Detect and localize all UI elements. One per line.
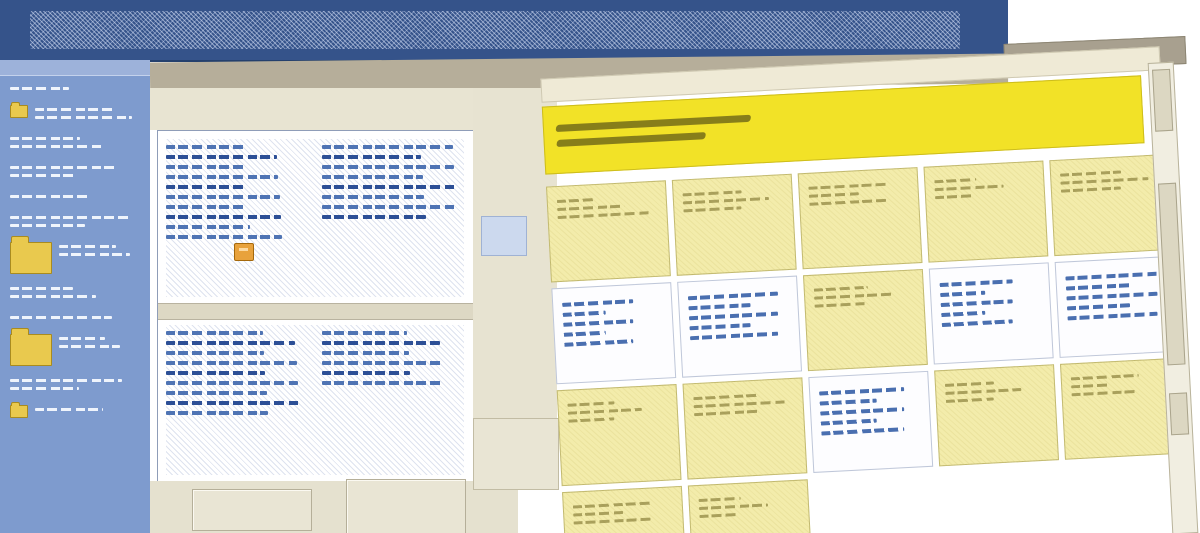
sidebar-item[interactable] (0, 97, 150, 126)
list-pane-upper-section (166, 139, 464, 297)
illegible-text-line (35, 116, 132, 119)
illegible-text-line (59, 253, 130, 256)
scrollbar-thumb[interactable] (1169, 392, 1189, 435)
illegible-text-line (322, 341, 440, 345)
illegible-text-line (322, 351, 409, 355)
sidebar-item[interactable] (0, 184, 150, 205)
sidebar-item-label-noise (10, 311, 142, 324)
status-segment (192, 489, 312, 531)
sticky-note[interactable] (929, 262, 1054, 364)
sticky-note[interactable] (923, 161, 1048, 263)
sidebar-item-label-noise (59, 332, 142, 353)
illegible-text-line (683, 197, 769, 204)
illegible-text-line (814, 286, 868, 292)
sidebar-header (0, 60, 150, 76)
sidebar-item-label-noise (10, 82, 142, 95)
illegible-text-line (1066, 283, 1130, 290)
illegible-text-line (568, 408, 642, 415)
illegible-text-line (322, 165, 454, 169)
illegible-text-line (166, 401, 299, 405)
sidebar-item-label-noise (10, 161, 142, 182)
illegible-text-line (809, 192, 859, 198)
sidebar-item-label-noise (10, 211, 142, 232)
illegible-text-line (166, 331, 263, 335)
illegible-text-line (322, 175, 423, 179)
window-title-text-noise (30, 11, 960, 49)
illegible-text-line (166, 391, 267, 395)
illegible-text-line (10, 387, 79, 390)
sidebar-item[interactable] (0, 76, 150, 97)
list-toolbar[interactable] (150, 88, 475, 130)
sidebar-item[interactable] (0, 368, 150, 397)
illegible-text-line (10, 195, 91, 198)
sticky-note[interactable] (672, 174, 797, 276)
illegible-text-line (322, 185, 455, 189)
gutter-panel (473, 418, 559, 490)
sidebar-item[interactable] (0, 305, 150, 326)
illegible-text-line (563, 311, 606, 317)
illegible-text-line (166, 361, 297, 365)
sticky-note[interactable] (803, 269, 928, 371)
illegible-text-line (690, 332, 778, 341)
illegible-text-line (35, 108, 114, 111)
illegible-text-line (688, 292, 778, 301)
illegible-text-line (941, 299, 1013, 307)
illegible-text-line (322, 215, 426, 219)
illegible-text-line (1068, 312, 1158, 321)
illegible-text-line (557, 198, 597, 203)
scrollbar-thumb[interactable] (1152, 69, 1173, 132)
sidebar-item-label-noise (10, 282, 142, 303)
illegible-text-line (809, 199, 886, 206)
folder-icon-large (10, 242, 52, 274)
illegible-text-line (10, 145, 102, 148)
illegible-text-line (820, 407, 904, 415)
illegible-text-line (940, 279, 1013, 287)
illegible-text-line (10, 166, 118, 169)
sidebar-item[interactable] (0, 326, 150, 368)
sticky-note[interactable] (808, 371, 933, 473)
sidebar-item[interactable] (0, 276, 150, 305)
illegible-text-line (821, 419, 877, 426)
illegible-text-line (166, 195, 280, 199)
illegible-text-line (10, 137, 80, 140)
sidebar-item[interactable] (0, 155, 150, 184)
text-column (166, 325, 308, 475)
illegible-text-line (10, 295, 96, 298)
folder-sidebar (0, 60, 150, 533)
illegible-text-line (166, 235, 282, 239)
sticky-note[interactable] (677, 276, 802, 378)
illegible-text-line (322, 371, 410, 375)
sticky-note[interactable] (546, 180, 671, 282)
list-pane (157, 130, 475, 484)
text-column (166, 139, 308, 297)
illegible-text-line (564, 331, 606, 337)
illegible-text-line (10, 87, 69, 90)
illegible-text-line (814, 292, 895, 299)
illegible-text-line (166, 155, 277, 159)
illegible-text-line (815, 302, 868, 308)
illegible-text-line (322, 331, 407, 335)
illegible-text-line (1067, 303, 1130, 310)
sticky-note[interactable] (557, 384, 682, 486)
illegible-text-line (166, 411, 268, 415)
illegible-text-line (59, 345, 120, 348)
illegible-text-line (166, 205, 248, 209)
illegible-text-line (567, 401, 614, 406)
illegible-text-line (821, 427, 904, 435)
illegible-text-line (819, 387, 904, 395)
illegible-text-line (10, 316, 112, 319)
illegible-text-line (946, 397, 994, 403)
illegible-text-line (945, 388, 1021, 395)
sticky-note[interactable] (688, 479, 813, 533)
sidebar-item-label-noise (10, 190, 142, 203)
sidebar-item-label-noise (59, 240, 142, 261)
illegible-text-line (166, 341, 295, 345)
sticky-note[interactable] (683, 377, 808, 479)
illegible-text-line (935, 194, 976, 199)
illegible-text-line (10, 224, 85, 227)
folder-icon (10, 405, 28, 418)
illegible-text-line (574, 518, 651, 525)
illegible-text-line (10, 287, 73, 290)
illegible-text-line (1072, 390, 1139, 397)
illegible-text-line (166, 215, 281, 219)
illegible-text-line (558, 211, 652, 219)
illegible-text-line (1061, 186, 1121, 192)
folder-icon (10, 105, 28, 118)
illegible-text-line (166, 145, 244, 149)
illegible-text-line (322, 145, 453, 149)
illegible-text-line (935, 185, 1004, 192)
illegible-text-line (1066, 292, 1157, 301)
illegible-text-line (166, 185, 247, 189)
sidebar-item[interactable] (0, 397, 150, 420)
illegible-text-line (10, 216, 129, 219)
illegible-text-line (693, 394, 759, 400)
illegible-text-line (690, 323, 751, 330)
illegible-text-line (564, 339, 633, 347)
illegible-text-line (166, 351, 264, 355)
illegible-text-line (573, 502, 651, 509)
sidebar-item[interactable] (0, 205, 150, 234)
illegible-text-line (166, 381, 298, 385)
illegible-text-line (694, 400, 787, 408)
sidebar-item[interactable] (0, 126, 150, 155)
illegible-text-line (322, 205, 457, 209)
illegible-text-line (322, 155, 421, 159)
window-title-bar[interactable] (0, 0, 1008, 62)
sidebar-item-label-noise (35, 403, 142, 416)
sticky-note[interactable] (934, 364, 1059, 466)
illegible-text-line (563, 319, 633, 327)
illegible-text-line (820, 399, 877, 406)
illegible-text-line (322, 361, 441, 365)
illegible-text-line (562, 299, 633, 307)
illegible-text-line (683, 190, 742, 196)
screenshot-root (0, 0, 1200, 533)
illegible-text-line (10, 379, 122, 382)
illegible-text-line (322, 195, 424, 199)
status-bar (150, 481, 518, 533)
illegible-text-line (688, 303, 750, 310)
illegible-text-line (166, 165, 246, 169)
illegible-text-line (1065, 272, 1157, 281)
illegible-text-line (166, 225, 250, 229)
illegible-text-line (808, 183, 886, 190)
scrollbar-thumb[interactable] (1158, 183, 1186, 366)
text-column (322, 139, 464, 297)
sidebar-item-label-noise (10, 132, 142, 153)
list-pane-lower-section (166, 325, 464, 475)
folder-icon-large (10, 334, 52, 366)
illegible-text-line (557, 205, 624, 212)
illegible-text-line (699, 513, 740, 518)
illegible-text-line (573, 511, 623, 517)
illegible-text-line (694, 410, 759, 416)
illegible-text-line (942, 319, 1013, 327)
illegible-text-line (1060, 170, 1121, 176)
illegible-text-line (322, 381, 443, 385)
illegible-text-line (1060, 177, 1148, 185)
illegible-text-line (10, 174, 75, 177)
illegible-text-line (683, 206, 741, 212)
sticky-board-window (532, 46, 1199, 533)
pane-splitter[interactable] (158, 303, 474, 320)
illegible-text-line (35, 408, 103, 411)
sidebar-item[interactable] (0, 234, 150, 276)
illegible-text-line (699, 503, 768, 510)
illegible-text-line (699, 497, 741, 502)
illegible-text-line (940, 291, 985, 297)
sidebar-item-label-noise (10, 374, 142, 395)
sticky-note-grid (546, 154, 1190, 533)
illegible-text-line (59, 245, 116, 248)
text-column (322, 325, 464, 475)
sticky-note[interactable] (798, 167, 923, 269)
illegible-text-line (941, 311, 985, 317)
illegible-text-line (689, 312, 778, 321)
flag-icon (234, 243, 254, 261)
illegible-text-line (568, 417, 614, 422)
illegible-text-line (934, 178, 976, 183)
illegible-text-line (166, 371, 265, 375)
sticky-note[interactable] (551, 282, 676, 384)
illegible-text-line (1071, 374, 1139, 381)
illegible-text-line (166, 175, 278, 179)
sticky-note[interactable] (562, 486, 687, 533)
illegible-text-line (945, 381, 994, 387)
group-header-scribble (556, 132, 706, 147)
gutter-thumbnail (481, 216, 527, 256)
group-header-scribble (555, 115, 751, 132)
sidebar-item-label-noise (35, 103, 142, 124)
illegible-text-line (59, 337, 105, 340)
status-segment (346, 479, 466, 533)
illegible-text-line (1071, 383, 1111, 388)
